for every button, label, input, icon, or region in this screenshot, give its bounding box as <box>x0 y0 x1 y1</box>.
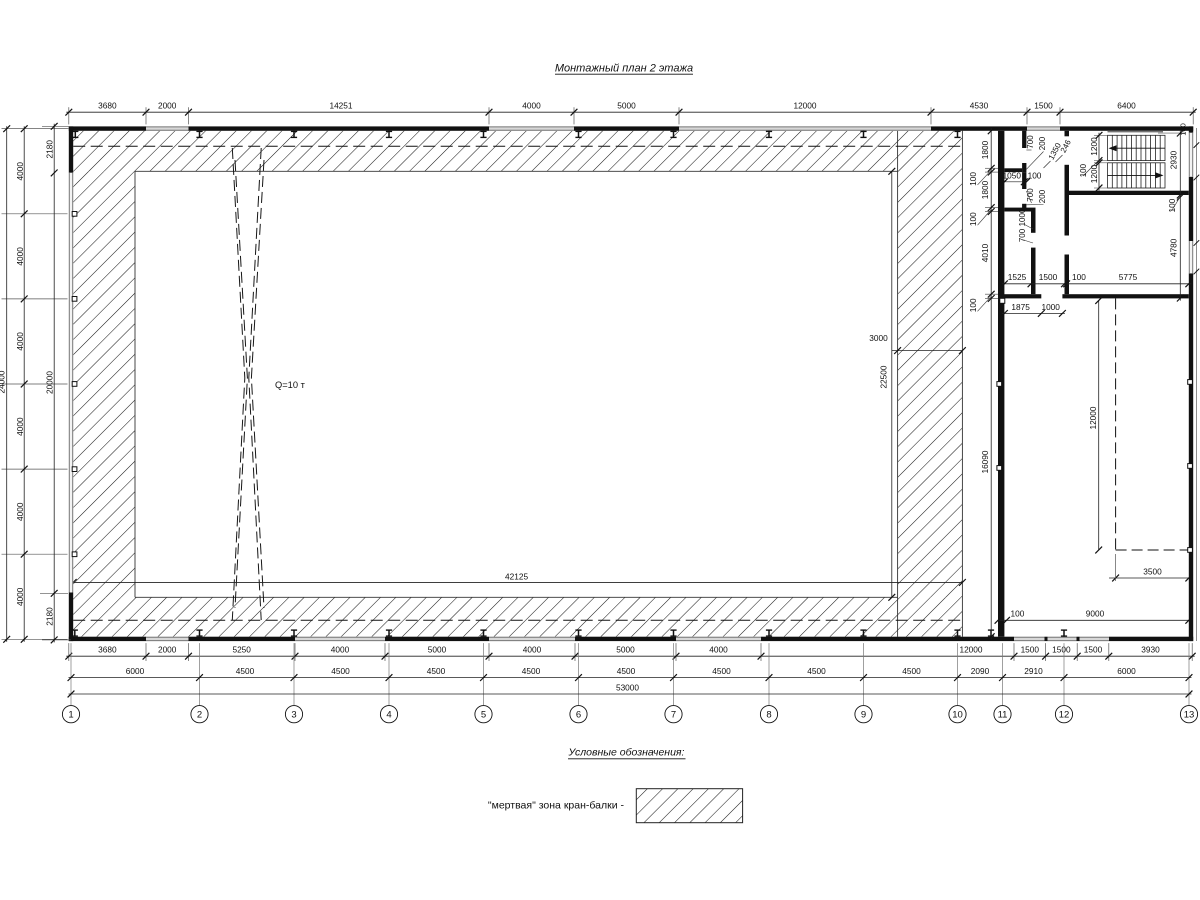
svg-text:4500: 4500 <box>522 666 541 676</box>
svg-text:4000: 4000 <box>709 645 728 655</box>
svg-text:3930: 3930 <box>1141 645 1160 655</box>
svg-text:4000: 4000 <box>15 332 25 351</box>
svg-text:4500: 4500 <box>236 666 255 676</box>
svg-text:5250: 5250 <box>232 645 251 655</box>
svg-text:1500: 1500 <box>1052 645 1071 655</box>
svg-text:6000: 6000 <box>126 666 145 676</box>
svg-text:8: 8 <box>766 709 771 720</box>
svg-text:1800: 1800 <box>980 140 990 159</box>
svg-text:1875: 1875 <box>1011 302 1030 312</box>
svg-text:20000: 20000 <box>44 371 54 394</box>
svg-text:4000: 4000 <box>522 101 541 111</box>
svg-text:16090: 16090 <box>980 450 990 473</box>
svg-text:Условные обозначения:: Условные обозначения: <box>568 747 685 759</box>
svg-text:7: 7 <box>671 709 676 720</box>
svg-text:4530: 4530 <box>970 101 989 111</box>
svg-text:100: 100 <box>968 172 978 186</box>
svg-text:200: 200 <box>1038 189 1047 203</box>
svg-text:100: 100 <box>968 298 978 312</box>
svg-text:1500: 1500 <box>1021 645 1040 655</box>
svg-text:4000: 4000 <box>15 247 25 266</box>
svg-text:100: 100 <box>1072 272 1086 282</box>
svg-text:4010: 4010 <box>980 243 990 262</box>
svg-text:42125: 42125 <box>505 572 528 582</box>
svg-text:1: 1 <box>68 709 73 720</box>
svg-text:700: 700 <box>1018 228 1027 242</box>
svg-text:2180: 2180 <box>44 140 54 159</box>
svg-text:1000: 1000 <box>1041 302 1060 312</box>
svg-text:4780: 4780 <box>1168 238 1178 257</box>
svg-text:3500: 3500 <box>1143 567 1162 577</box>
svg-text:2000: 2000 <box>158 101 177 111</box>
svg-text:4000: 4000 <box>15 417 25 436</box>
svg-text:12000: 12000 <box>1088 406 1098 429</box>
svg-text:6: 6 <box>576 709 581 720</box>
svg-text:12000: 12000 <box>793 101 816 111</box>
svg-text:Q=10 т: Q=10 т <box>275 380 306 390</box>
svg-text:4500: 4500 <box>331 666 350 676</box>
svg-text:22500: 22500 <box>879 365 889 388</box>
svg-text:2090: 2090 <box>971 666 990 676</box>
svg-text:4500: 4500 <box>712 666 731 676</box>
svg-text:5000: 5000 <box>616 645 635 655</box>
svg-text:2180: 2180 <box>44 607 54 626</box>
svg-text:1200: 1200 <box>1089 137 1099 156</box>
svg-text:14251: 14251 <box>329 101 352 111</box>
svg-text:1000: 1000 <box>1018 208 1027 226</box>
svg-text:4500: 4500 <box>427 666 446 676</box>
svg-text:2930: 2930 <box>1168 150 1178 169</box>
svg-text:4500: 4500 <box>902 666 921 676</box>
svg-text:12: 12 <box>1059 709 1070 720</box>
svg-text:3: 3 <box>291 709 296 720</box>
svg-text:3680: 3680 <box>98 645 117 655</box>
svg-text:5000: 5000 <box>428 645 447 655</box>
svg-text:53000: 53000 <box>616 682 639 692</box>
svg-text:2: 2 <box>197 709 202 720</box>
svg-text:4000: 4000 <box>15 162 25 181</box>
svg-text:24000: 24000 <box>0 370 7 393</box>
svg-text:4: 4 <box>386 709 391 720</box>
svg-text:1525: 1525 <box>1008 272 1027 282</box>
svg-text:1050: 1050 <box>1003 170 1022 180</box>
svg-text:1800: 1800 <box>980 180 990 199</box>
svg-text:4500: 4500 <box>807 666 826 676</box>
svg-text:100: 100 <box>1011 609 1025 619</box>
svg-text:9: 9 <box>861 709 866 720</box>
svg-text:4000: 4000 <box>331 645 350 655</box>
svg-text:3680: 3680 <box>98 101 117 111</box>
svg-text:"мертвая" зона кран-балки -: "мертвая" зона кран-балки - <box>488 799 625 811</box>
svg-text:100: 100 <box>968 212 978 226</box>
svg-text:12000: 12000 <box>959 645 982 655</box>
svg-text:5775: 5775 <box>1119 272 1138 282</box>
svg-text:2000: 2000 <box>158 645 177 655</box>
svg-text:Монтажный план 2 этажа: Монтажный план 2 этажа <box>555 63 693 75</box>
svg-text:11: 11 <box>998 709 1008 720</box>
svg-text:2910: 2910 <box>1024 666 1043 676</box>
svg-text:1500: 1500 <box>1034 101 1053 111</box>
svg-text:700: 700 <box>1026 135 1035 149</box>
svg-text:100: 100 <box>1179 123 1188 136</box>
svg-text:13: 13 <box>1184 709 1195 720</box>
svg-text:9000: 9000 <box>1086 609 1105 619</box>
svg-text:5000: 5000 <box>617 101 636 111</box>
svg-text:4000: 4000 <box>15 502 25 521</box>
svg-text:1500: 1500 <box>1084 645 1103 655</box>
svg-text:4500: 4500 <box>617 666 636 676</box>
svg-text:200: 200 <box>1038 136 1047 150</box>
svg-text:3000: 3000 <box>869 333 888 343</box>
svg-text:4000: 4000 <box>523 645 542 655</box>
svg-text:1200: 1200 <box>1089 164 1099 183</box>
svg-text:5: 5 <box>481 709 486 720</box>
svg-text:4000: 4000 <box>15 587 25 606</box>
svg-text:10: 10 <box>952 709 963 720</box>
svg-text:700: 700 <box>1026 188 1035 202</box>
svg-text:6400: 6400 <box>1117 101 1136 111</box>
svg-text:1500: 1500 <box>1039 272 1058 282</box>
svg-text:6000: 6000 <box>1117 666 1136 676</box>
